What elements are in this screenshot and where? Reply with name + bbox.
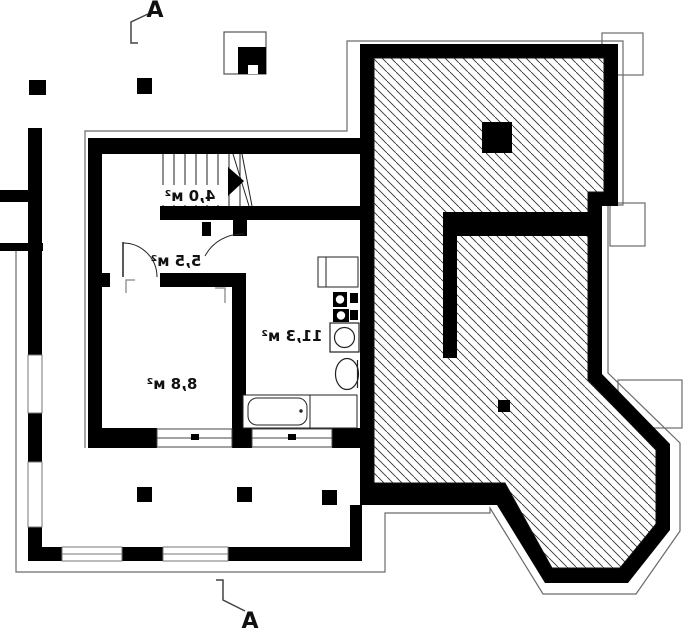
wall-bottom — [88, 428, 157, 448]
wall-hall — [102, 273, 110, 287]
column — [237, 487, 252, 502]
column-garage — [498, 400, 510, 412]
terrace-wall-bottom — [228, 547, 350, 561]
window — [28, 462, 42, 527]
chimney-top — [224, 32, 266, 74]
section-letter-bottom: A — [241, 609, 258, 628]
floor-plan-drawing: 4,0 м² 5,5 м² 8,8 м² 11,3 м² A A — [0, 0, 700, 628]
counter — [318, 257, 358, 287]
terrace-wall-left — [28, 413, 42, 462]
wall-hall — [160, 273, 232, 287]
retaining-wall — [0, 243, 43, 251]
interior-wall — [443, 212, 590, 236]
chimney-garage — [482, 122, 512, 153]
label-staircase-area: 4,0 м² — [165, 187, 216, 205]
terrace-wall-bottom — [122, 547, 163, 561]
washing-machine-icon — [330, 323, 359, 352]
bathtub-icon — [243, 395, 357, 428]
retaining-wall — [0, 190, 30, 202]
toilet-icon — [336, 359, 359, 390]
wall-top — [88, 138, 362, 154]
floor-plan: 4,0 м² 5,5 м² 8,8 м² 11,3 м² A A — [0, 0, 700, 628]
terrace-wall-right — [350, 505, 362, 561]
interior-wall — [443, 212, 457, 358]
terrace-wall-left — [28, 128, 42, 355]
label-hallway-area: 5,5 м² — [151, 252, 202, 270]
wall-stair-landing — [160, 206, 362, 220]
wall-stub — [322, 490, 337, 505]
label-room-area: 8,8 м² — [147, 375, 198, 393]
wall-bottom — [332, 428, 362, 448]
door-leaf — [202, 222, 211, 236]
wall-left — [88, 138, 102, 448]
window — [28, 355, 42, 413]
column — [137, 487, 152, 502]
column — [29, 80, 46, 95]
label-utility-area: 11,3 м² — [261, 327, 322, 345]
column — [137, 78, 152, 94]
terrace-wall-bottom — [28, 547, 62, 561]
section-letter-top: A — [146, 0, 163, 23]
